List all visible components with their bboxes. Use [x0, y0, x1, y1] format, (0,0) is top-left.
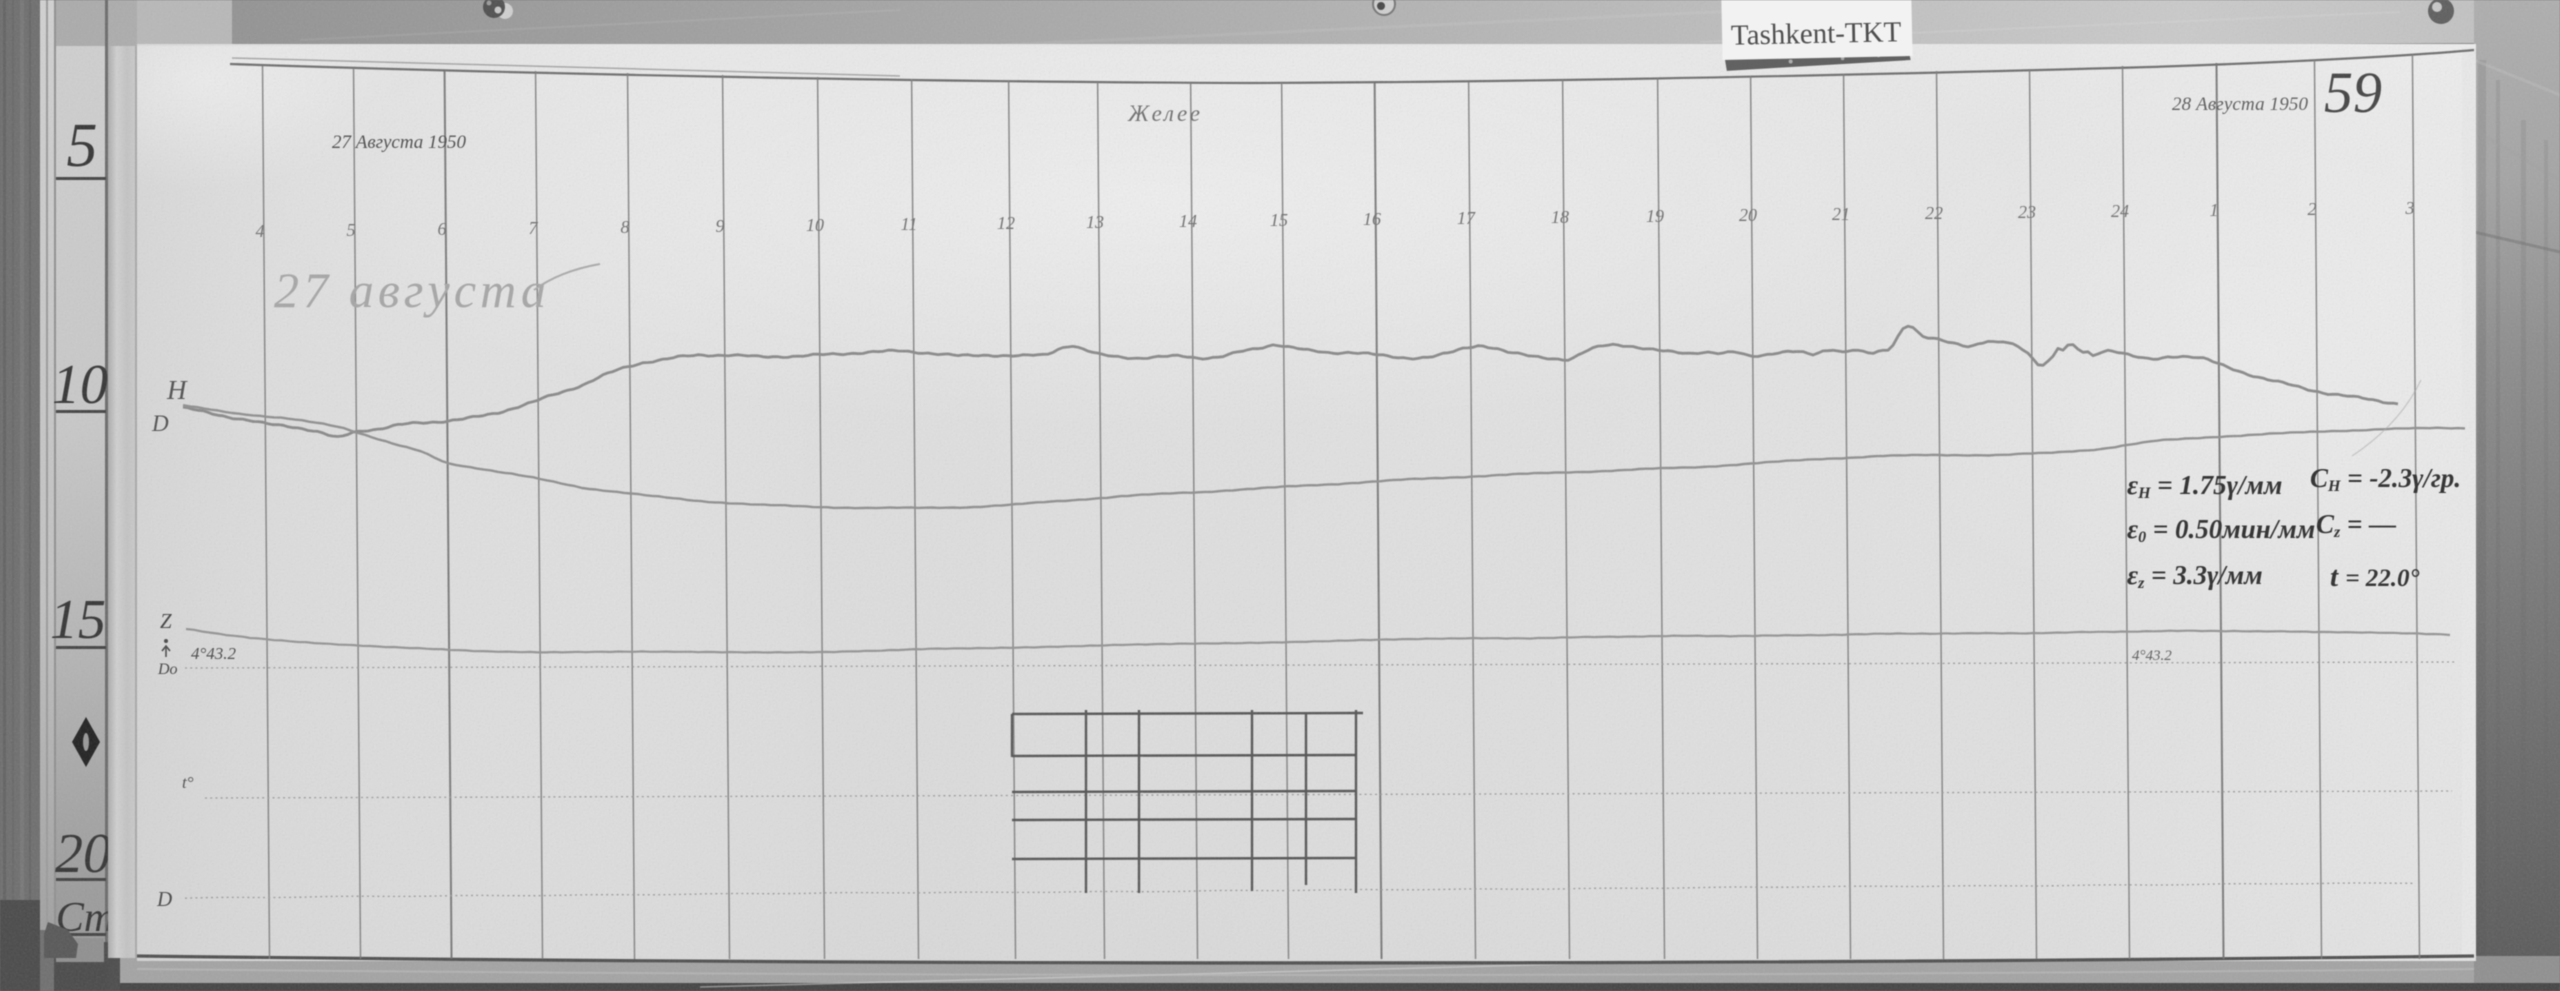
- svg-text:Tashkent-TKT: Tashkent-TKT: [1731, 16, 1902, 52]
